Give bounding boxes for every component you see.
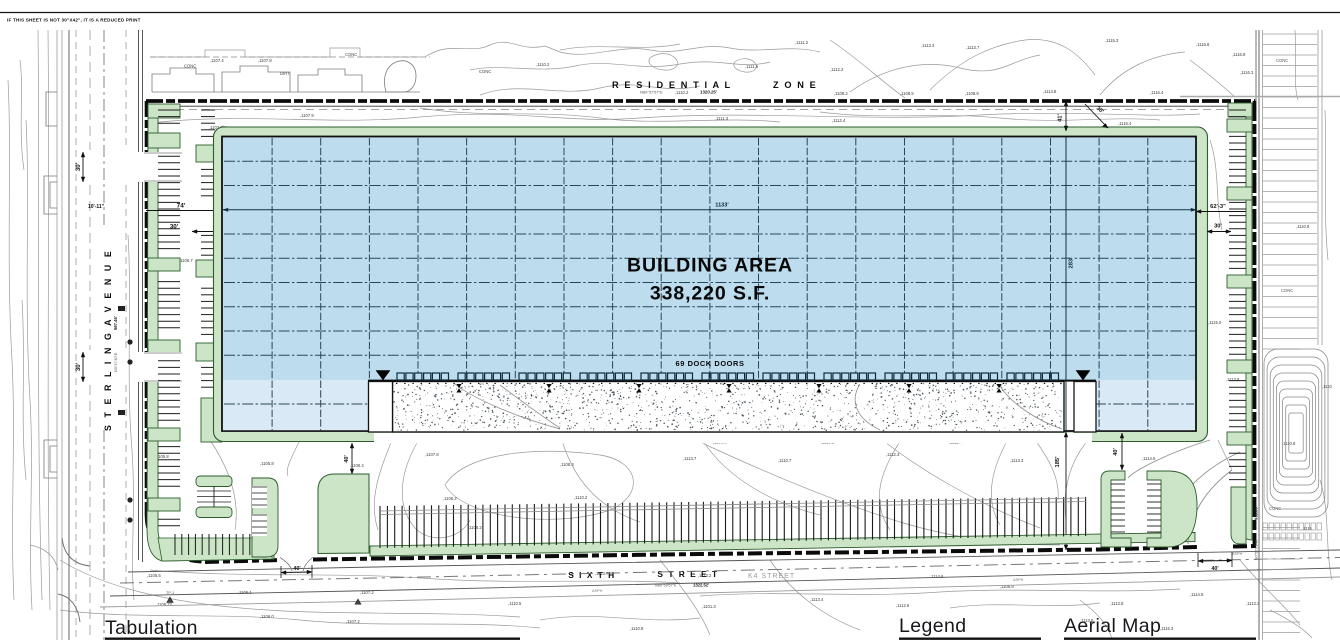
svg-text:Z O N E: Z O N E	[773, 80, 817, 90]
svg-text:,1112.2: ,1112.2	[830, 67, 844, 72]
svg-text:,1114.8: ,1114.8	[1043, 89, 1057, 94]
svg-text:CONC: CONC	[479, 69, 491, 74]
svg-text:,1101.3: ,1101.3	[702, 604, 716, 609]
svg-text:40': 40'	[344, 455, 350, 463]
svg-text:,1111.6: ,1111.6	[745, 64, 759, 69]
svg-text:,1106.1: ,1106.1	[238, 590, 252, 595]
svg-text:CONC: CONC	[1276, 58, 1288, 63]
svg-text:,1110.2: ,1110.2	[574, 495, 588, 500]
svg-text:,1115.3: ,1115.3	[1105, 38, 1119, 43]
svg-text:40': 40'	[1113, 448, 1119, 456]
svg-text:CONC: CONC	[1281, 288, 1293, 293]
svg-text:,1113.7: ,1113.7	[966, 45, 980, 50]
svg-text:,1107.8: ,1107.8	[258, 58, 272, 63]
svg-text:,1110.8: ,1110.8	[1296, 224, 1310, 229]
svg-text:,1110.7: ,1110.7	[778, 458, 792, 463]
svg-text:,1107.9: ,1107.9	[300, 113, 314, 118]
svg-text:R E S I D E N T I A L: R E S I D E N T I A L	[612, 80, 732, 90]
svg-text:,1114.5: ,1114.5	[1142, 456, 1156, 461]
svg-text:,1108.2: ,1108.2	[834, 91, 848, 96]
svg-text:,1106.7: ,1106.7	[179, 258, 193, 263]
svg-text:,1114.6: ,1114.6	[930, 574, 944, 579]
svg-text:,1110.2: ,1110.2	[536, 62, 550, 67]
svg-text:,1106.0: ,1106.0	[260, 614, 274, 619]
svg-text:TP-1: TP-1	[166, 591, 174, 595]
svg-text:338,220 S.F.: 338,220 S.F.	[650, 283, 770, 305]
svg-text:,1115.3: ,1115.3	[1160, 626, 1174, 631]
svg-text:40': 40'	[1211, 566, 1218, 572]
svg-text:IF THIS SHEET IS NOT 30"X42",: IF THIS SHEET IS NOT 30"X42", IT IS A RE…	[7, 18, 141, 23]
svg-text:ASPH: ASPH	[1232, 552, 1243, 556]
svg-text:N89°57'57"E: N89°57'57"E	[640, 90, 663, 95]
svg-text:,1113.4: ,1113.4	[810, 597, 824, 602]
svg-text:,1112.4: ,1112.4	[832, 118, 846, 123]
svg-text:Tabulation: Tabulation	[105, 617, 198, 639]
svg-text:,1110: ,1110	[1322, 384, 1333, 389]
svg-text:,1105.5: ,1105.5	[147, 573, 161, 578]
svg-text:567.46': 567.46'	[113, 316, 118, 330]
svg-text:,1107.2: ,1107.2	[346, 619, 360, 624]
svg-text:,1105.8: ,1105.8	[260, 461, 274, 466]
svg-text:,1108.5: ,1108.5	[900, 91, 914, 96]
svg-text:283': 283'	[1069, 257, 1075, 269]
svg-text:1133': 1133'	[715, 203, 729, 209]
svg-text:69 DOCK DOORS: 69 DOCK DOORS	[676, 359, 745, 368]
svg-text:BUILDING AREA: BUILDING AREA	[627, 255, 793, 277]
svg-text:,1107.8: ,1107.8	[425, 452, 439, 457]
svg-text:,1114.5: ,1114.5	[1190, 592, 1204, 597]
svg-text:,1111.2: ,1111.2	[795, 40, 809, 45]
svg-text:74': 74'	[177, 203, 186, 210]
svg-text:,1111.3: ,1111.3	[715, 116, 729, 121]
svg-text:,1112.3: ,1112.3	[886, 452, 900, 457]
svg-text:40': 40'	[293, 566, 300, 572]
svg-text:41': 41'	[1058, 113, 1064, 121]
svg-text:,1116.4: ,1116.4	[1118, 121, 1132, 126]
svg-text:,1113.3: ,1113.3	[1246, 601, 1260, 606]
svg-text:,1113.3: ,1113.3	[921, 43, 935, 48]
svg-text:185': 185'	[1055, 456, 1061, 468]
svg-text:30': 30'	[170, 224, 179, 231]
svg-text:,1110.2: ,1110.2	[675, 90, 689, 95]
svg-text:,1108.3: ,1108.3	[560, 462, 574, 467]
svg-text:938.85': 938.85'	[1254, 506, 1259, 520]
svg-text:,1116.8: ,1116.8	[1196, 42, 1210, 47]
svg-text:,1113.8: ,1113.8	[1110, 601, 1124, 606]
svg-text:,1116.4: ,1116.4	[1150, 90, 1164, 95]
svg-text:,1113.7: ,1113.7	[683, 456, 697, 461]
svg-text:ASPH: ASPH	[592, 589, 603, 593]
svg-text:ASPH: ASPH	[1013, 578, 1024, 582]
svg-text:,1107.4: ,1107.4	[210, 58, 224, 63]
svg-text:CONC: CONC	[345, 52, 357, 57]
svg-text:,1110.5: ,1110.5	[508, 601, 522, 606]
svg-text:Aerial Map: Aerial Map	[1064, 615, 1161, 637]
svg-text:1320.25': 1320.25'	[700, 90, 717, 95]
svg-text:,1112.6: ,1112.6	[896, 603, 910, 608]
svg-text:DIRT: DIRT	[280, 71, 290, 76]
svg-text:,1116.8: ,1116.8	[1232, 52, 1246, 57]
svg-text:30': 30'	[76, 362, 82, 371]
svg-text:S T R E E T: S T R E E T	[657, 569, 718, 579]
svg-text:,1108.9: ,1108.9	[965, 91, 979, 96]
svg-text:K4 STREET: K4 STREET	[748, 573, 795, 580]
svg-text:N0°47'40"E: N0°47'40"E	[114, 352, 118, 372]
svg-text:Legend: Legend	[899, 615, 966, 637]
svg-text:,1110.8: ,1110.8	[630, 626, 644, 631]
svg-text:62'-3": 62'-3"	[1210, 204, 1226, 210]
svg-text:S I X T H: S I X T H	[568, 570, 615, 580]
svg-text:,1115.0: ,1115.0	[1208, 320, 1222, 325]
svg-text:S0°52'03"W: S0°52'03"W	[1255, 539, 1259, 560]
svg-text:,1113.3: ,1113.3	[1010, 458, 1024, 463]
svg-text:30': 30'	[1214, 224, 1222, 230]
svg-text:10'-11": 10'-11"	[88, 204, 105, 210]
svg-text:,1113.8: ,1113.8	[1226, 377, 1240, 382]
svg-text:CONC: CONC	[184, 64, 196, 69]
svg-text:30': 30'	[76, 162, 82, 171]
svg-text:S T E R L I N G A V E N U E: S T E R L I N G A V E N U E	[103, 249, 113, 431]
svg-text:,1106.2: ,1106.2	[443, 496, 457, 501]
svg-text:,1116.3: ,1116.3	[1240, 70, 1254, 75]
